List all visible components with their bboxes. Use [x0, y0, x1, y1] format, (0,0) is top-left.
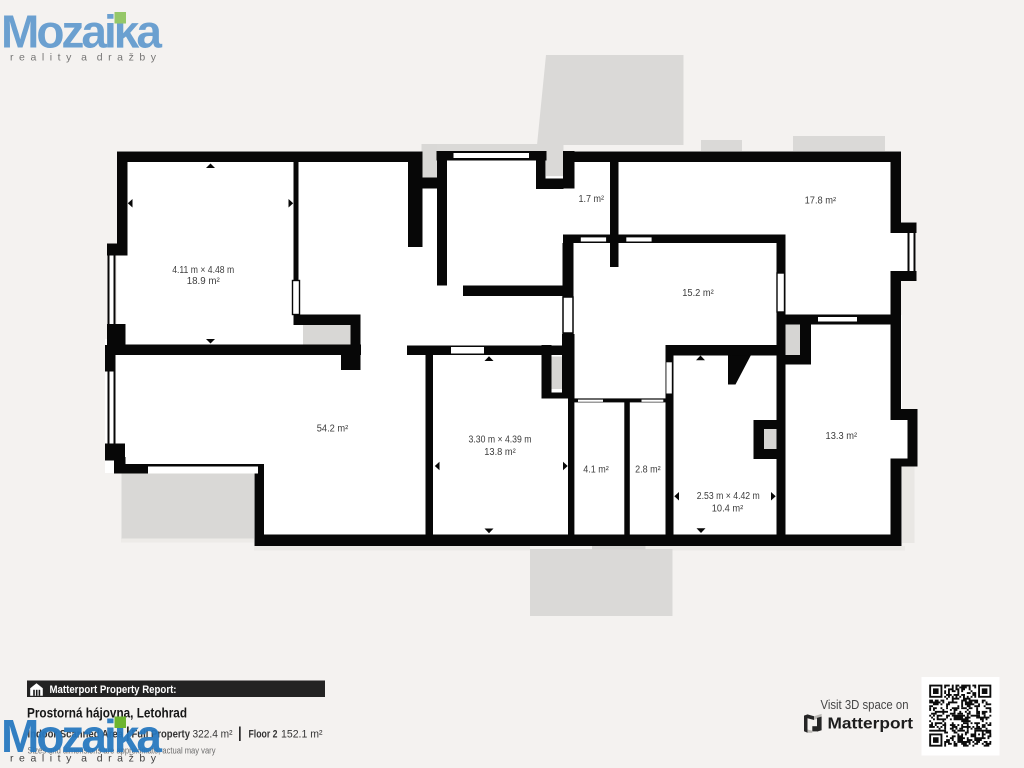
svg-text:18.9 m²: 18.9 m² — [187, 276, 221, 287]
svg-text:15.2 m²: 15.2 m² — [682, 288, 714, 299]
svg-text:13.8 m²: 13.8 m² — [484, 447, 516, 458]
svg-text:4.11 m × 4.48 m: 4.11 m × 4.48 m — [172, 265, 234, 276]
svg-text:Visit 3D space on: Visit 3D space on — [821, 698, 909, 712]
svg-text:Matterport Property Report:: Matterport Property Report: — [50, 684, 177, 696]
svg-text:1.7 m²: 1.7 m² — [579, 194, 605, 205]
svg-text:2.53 m × 4.42 m: 2.53 m × 4.42 m — [697, 491, 760, 502]
svg-text:10.4 m²: 10.4 m² — [712, 503, 744, 514]
svg-text:Mozaika: Mozaika — [1, 6, 162, 58]
svg-text:3.30 m × 4.39 m: 3.30 m × 4.39 m — [469, 434, 532, 445]
svg-text:54.2 m²: 54.2 m² — [317, 424, 349, 435]
svg-text:Matterport: Matterport — [828, 716, 914, 733]
svg-text:r e a l i t y a d r a ž b y: r e a l i t y a d r a ž b y — [10, 753, 157, 765]
svg-text:13.3 m²: 13.3 m² — [826, 431, 858, 442]
svg-text:17.8 m²: 17.8 m² — [805, 195, 837, 206]
svg-text:2.8 m²: 2.8 m² — [635, 465, 661, 476]
svg-text:4.1 m²: 4.1 m² — [583, 465, 609, 476]
svg-text:r e a l i t y a d r a ž b y: r e a l i t y a d r a ž b y — [10, 52, 157, 64]
